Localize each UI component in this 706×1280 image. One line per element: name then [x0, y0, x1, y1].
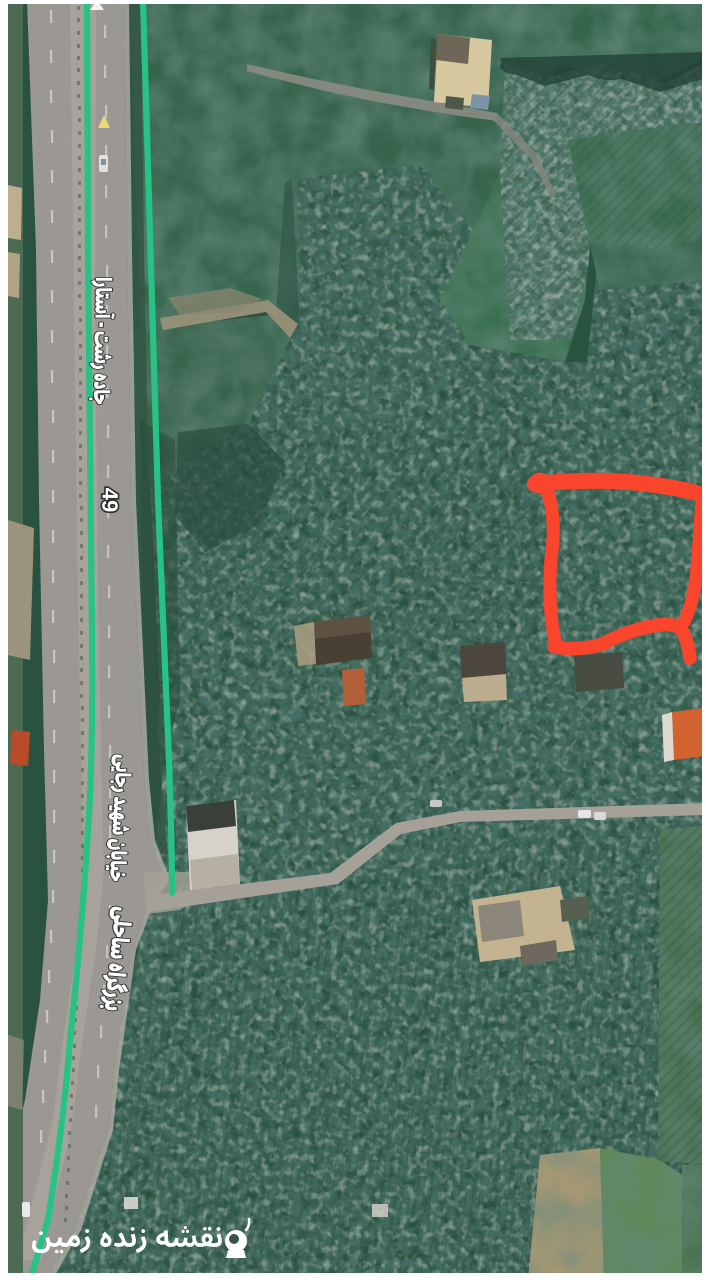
svg-text:49: 49 — [97, 488, 122, 513]
